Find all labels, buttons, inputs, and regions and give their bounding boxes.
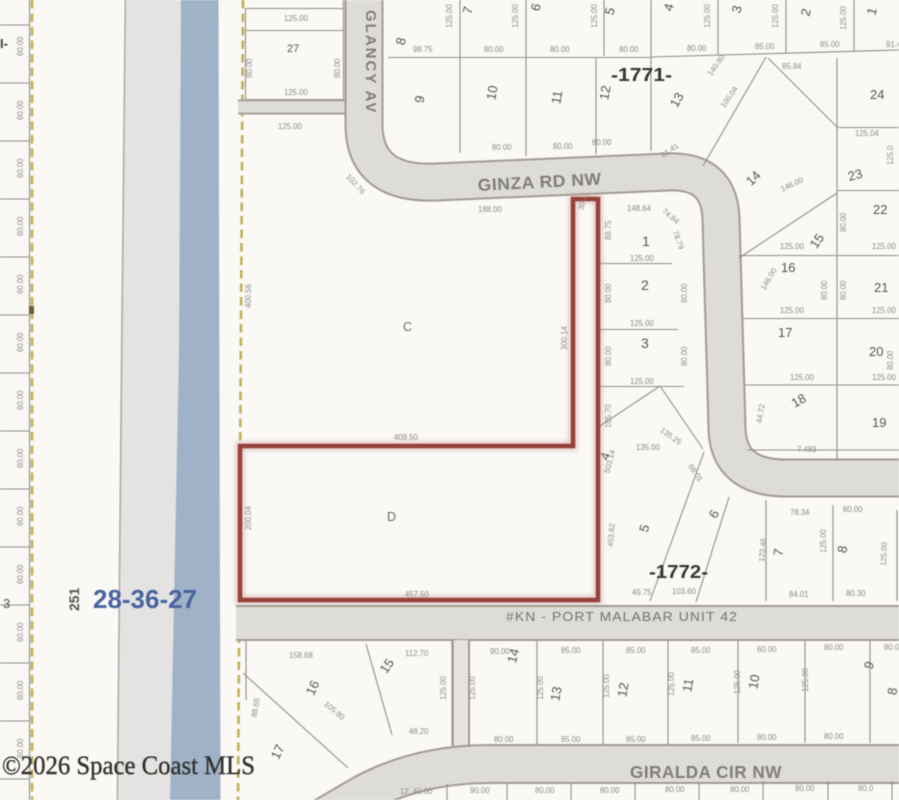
- svg-text:125.00: 125.00: [733, 669, 742, 694]
- svg-text:80.00: 80.00: [886, 350, 895, 370]
- svg-text:80.00: 80.00: [824, 732, 844, 741]
- svg-text:125.00: 125.00: [819, 528, 828, 553]
- svg-text:20: 20: [869, 344, 883, 359]
- svg-text:12. 40.00: 12. 40.00: [400, 787, 433, 796]
- svg-text:125.00: 125.00: [630, 377, 655, 386]
- svg-text:125.00: 125.00: [284, 14, 309, 23]
- svg-text:200.04: 200.04: [244, 505, 253, 530]
- svg-text:85.00: 85.00: [755, 42, 775, 51]
- svg-text:49.75: 49.75: [632, 588, 652, 597]
- svg-text:188.00: 188.00: [478, 205, 503, 214]
- svg-text:103.60: 103.60: [672, 587, 697, 596]
- svg-text:D: D: [387, 510, 396, 524]
- svg-text:125.00: 125.00: [602, 673, 611, 698]
- svg-text:80.00: 80.00: [592, 138, 612, 147]
- svg-text:85.00: 85.00: [561, 646, 581, 655]
- svg-text:112.70: 112.70: [405, 649, 429, 658]
- svg-text:80.00: 80.00: [494, 735, 514, 744]
- svg-text:80.00: 80.00: [839, 280, 848, 300]
- svg-text:17: 17: [778, 325, 792, 340]
- svg-text:80.00: 80.00: [680, 283, 689, 303]
- svg-text:80.00: 80.00: [604, 346, 613, 366]
- svg-text:125.00: 125.00: [780, 242, 805, 251]
- svg-text:158.68: 158.68: [289, 651, 313, 660]
- svg-text:125.00: 125.00: [872, 306, 897, 315]
- svg-text:60.00: 60.00: [16, 216, 25, 236]
- svg-text:80.00: 80.00: [484, 45, 504, 54]
- svg-text:80.00: 80.00: [843, 505, 863, 514]
- svg-text:28-36-27: 28-36-27: [93, 584, 197, 614]
- svg-text:21: 21: [874, 280, 888, 295]
- svg-text:80.00: 80.00: [680, 346, 689, 366]
- svg-text:125.00: 125.00: [771, 3, 780, 28]
- svg-text:80.00: 80.00: [839, 212, 848, 232]
- svg-text:80.00: 80.00: [730, 785, 750, 794]
- svg-text:80.00: 80.00: [619, 45, 639, 54]
- svg-text:60.00: 60.00: [16, 36, 25, 56]
- svg-text:80.00: 80.00: [757, 733, 777, 742]
- svg-text:80.00: 80.00: [245, 58, 254, 78]
- svg-text:125.00: 125.00: [468, 675, 477, 700]
- svg-text:80.00: 80.00: [553, 142, 573, 151]
- svg-text:105.70: 105.70: [604, 403, 613, 428]
- svg-text:60.00: 60.00: [16, 158, 25, 178]
- svg-text:80.00: 80.00: [795, 784, 815, 793]
- svg-text:60.00: 60.00: [757, 645, 777, 654]
- svg-text:-1771-: -1771-: [611, 65, 672, 85]
- svg-text:400.56: 400.56: [244, 284, 253, 308]
- svg-text:GLANCY AV: GLANCY AV: [362, 10, 379, 114]
- svg-text:125.00: 125.00: [879, 541, 889, 566]
- svg-text:I-: I-: [0, 36, 8, 51]
- svg-text:12: 12: [614, 681, 631, 698]
- svg-text:1: 1: [642, 233, 650, 249]
- svg-text:60.00: 60.00: [16, 332, 25, 352]
- svg-text:80.00: 80.00: [665, 785, 685, 794]
- svg-text:125.00: 125.00: [839, 5, 848, 30]
- svg-text:85.00: 85.00: [626, 735, 646, 744]
- svg-text:©2026 Space Coast MLS: ©2026 Space Coast MLS: [2, 751, 255, 780]
- svg-text:125.00: 125.00: [630, 254, 655, 263]
- svg-text:60.00: 60.00: [16, 506, 25, 526]
- svg-text:90.0: 90.0: [884, 643, 899, 652]
- svg-text:11: 11: [679, 677, 696, 693]
- svg-text:13: 13: [547, 685, 564, 702]
- svg-text:16: 16: [781, 260, 795, 275]
- svg-text:125.00: 125.00: [590, 3, 599, 28]
- svg-text:24: 24: [870, 87, 884, 102]
- svg-text:80.00: 80.00: [550, 45, 570, 54]
- svg-text:19: 19: [872, 415, 886, 430]
- svg-text:#KN - PORT MALABAR UNIT 42: #KN - PORT MALABAR UNIT 42: [506, 610, 738, 624]
- svg-text:80.0: 80.0: [858, 784, 874, 793]
- svg-text:60.00: 60.00: [16, 564, 25, 584]
- svg-text:80.30: 80.30: [846, 589, 866, 598]
- svg-text:125.00: 125.00: [872, 373, 897, 382]
- svg-text:80.00: 80.00: [333, 58, 342, 78]
- svg-text:135.00: 135.00: [636, 443, 661, 452]
- svg-text:125.00: 125.00: [790, 373, 815, 382]
- svg-text:85.00: 85.00: [691, 646, 711, 655]
- svg-text:300.14: 300.14: [560, 325, 569, 350]
- svg-text:80.00: 80.00: [604, 283, 613, 303]
- svg-text:80.00: 80.00: [535, 786, 555, 795]
- svg-text:80.00: 80.00: [687, 44, 707, 53]
- svg-text:7.483: 7.483: [797, 445, 817, 454]
- svg-text:80.00: 80.00: [824, 643, 844, 652]
- svg-text:251: 251: [66, 587, 82, 611]
- svg-text:80.00: 80.00: [820, 280, 829, 300]
- svg-text:12: 12: [596, 84, 613, 101]
- svg-text:125.00: 125.00: [284, 88, 309, 97]
- svg-text:125.00: 125.00: [780, 306, 805, 315]
- svg-text:GIRALDA CIR NW: GIRALDA CIR NW: [630, 762, 782, 782]
- svg-text:3: 3: [641, 335, 649, 351]
- svg-text:10: 10: [483, 84, 500, 101]
- svg-text:125.00: 125.00: [439, 675, 448, 700]
- svg-text:60.00: 60.00: [16, 622, 25, 642]
- svg-text:3: 3: [3, 596, 10, 611]
- svg-text:48.20: 48.20: [409, 727, 429, 736]
- svg-text:11: 11: [548, 89, 565, 105]
- svg-text:457.50: 457.50: [405, 590, 430, 599]
- svg-text:98.75: 98.75: [413, 45, 433, 54]
- svg-text:409.50: 409.50: [394, 433, 419, 442]
- svg-text:125.0: 125.0: [886, 145, 895, 165]
- svg-text:85.00: 85.00: [561, 735, 581, 744]
- svg-text:88.75: 88.75: [604, 220, 613, 240]
- svg-text:125.00: 125.00: [630, 319, 655, 328]
- svg-text:60.00: 60.00: [16, 680, 25, 700]
- svg-text:C: C: [403, 320, 412, 334]
- svg-text:125.00: 125.00: [445, 3, 454, 28]
- svg-text:148.64: 148.64: [627, 204, 652, 213]
- svg-text:80.00: 80.00: [492, 143, 512, 152]
- svg-text:85.00: 85.00: [626, 646, 646, 655]
- svg-text:22: 22: [873, 202, 887, 217]
- svg-text:85.00: 85.00: [820, 40, 840, 49]
- svg-text:60.00: 60.00: [16, 448, 25, 468]
- svg-text:90.00: 90.00: [490, 647, 510, 656]
- svg-text:85.00: 85.00: [691, 734, 711, 743]
- svg-text:90.00: 90.00: [470, 786, 490, 795]
- svg-text:80.00: 80.00: [600, 786, 620, 795]
- svg-text:85.84: 85.84: [782, 62, 802, 71]
- svg-text:125.04: 125.04: [855, 129, 880, 138]
- svg-text:27: 27: [287, 43, 299, 55]
- svg-text:125.00: 125.00: [278, 122, 303, 131]
- svg-text:10: 10: [745, 673, 762, 690]
- svg-text:84.01: 84.01: [789, 590, 809, 599]
- svg-text:91.4: 91.4: [886, 40, 899, 49]
- svg-text:78.34: 78.34: [790, 508, 810, 517]
- svg-text:60.00: 60.00: [16, 390, 25, 410]
- svg-text:125.00: 125.00: [703, 3, 712, 28]
- svg-text:125.00: 125.00: [536, 675, 545, 700]
- svg-text:2: 2: [641, 277, 649, 293]
- svg-text:60.00: 60.00: [16, 274, 25, 294]
- svg-text:60.00: 60.00: [16, 100, 25, 120]
- svg-text:-1772-: -1772-: [649, 562, 708, 582]
- svg-text:125.00: 125.00: [511, 3, 520, 28]
- svg-text:125.00: 125.00: [872, 242, 897, 251]
- svg-text:125.00: 125.00: [667, 671, 676, 696]
- svg-text:125.00: 125.00: [801, 667, 810, 692]
